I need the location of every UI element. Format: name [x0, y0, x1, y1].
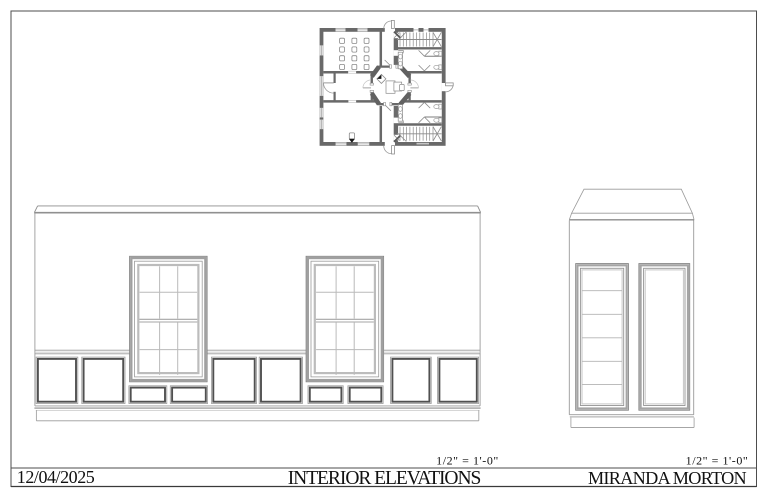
svg-text:1/2" = 1'-0": 1/2" = 1'-0"	[436, 454, 499, 468]
svg-text:INTERIOR ELEVATIONS: INTERIOR ELEVATIONS	[288, 468, 481, 489]
svg-text:MIRANDA MORTON: MIRANDA MORTON	[588, 468, 747, 488]
svg-text:12/04/2025: 12/04/2025	[17, 467, 95, 487]
svg-text:1/2" = 1'-0": 1/2" = 1'-0"	[686, 454, 749, 468]
